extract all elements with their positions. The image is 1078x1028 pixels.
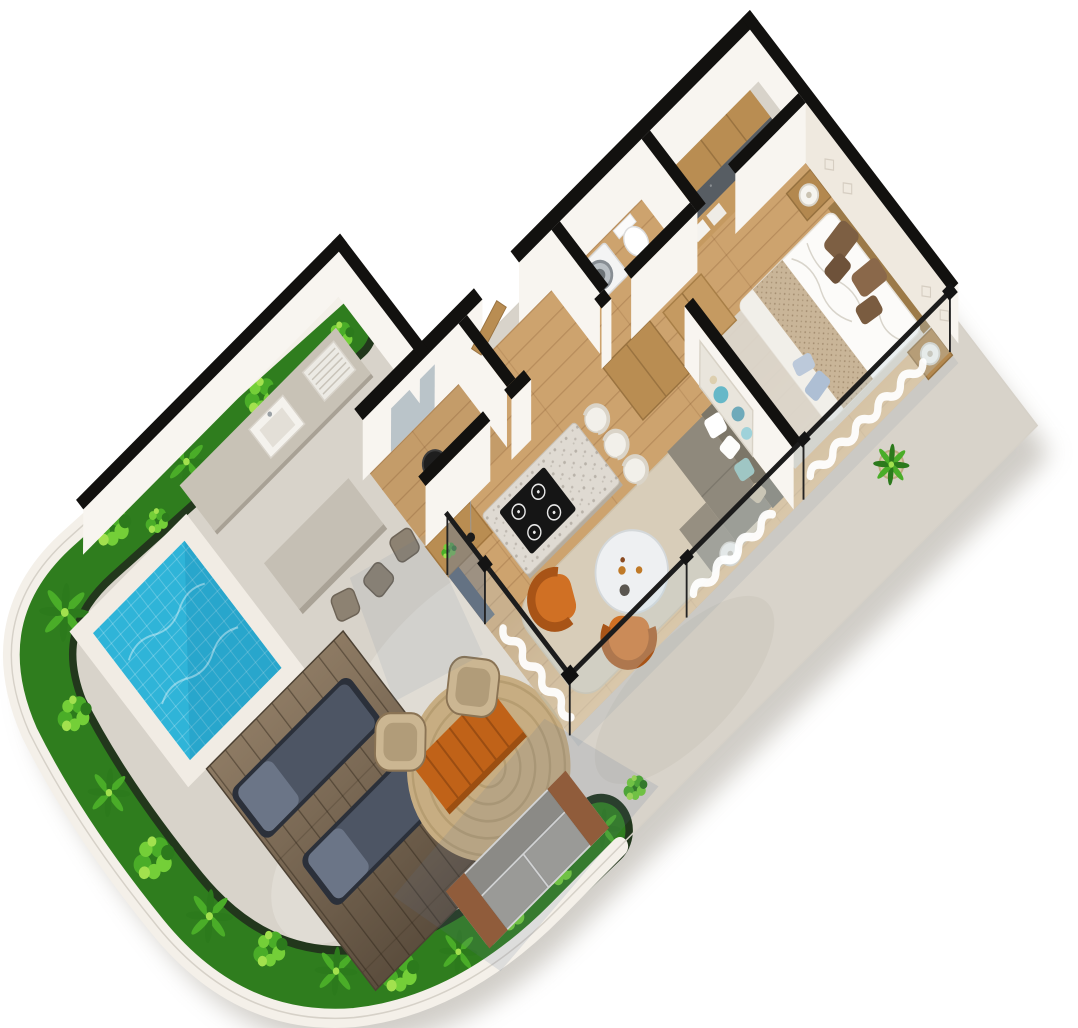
plan-scene (0, 0, 1072, 1028)
rattan-chair (375, 713, 426, 771)
floor-plan-canvas (0, 0, 1078, 1028)
floor-plan-render (0, 0, 1078, 1028)
